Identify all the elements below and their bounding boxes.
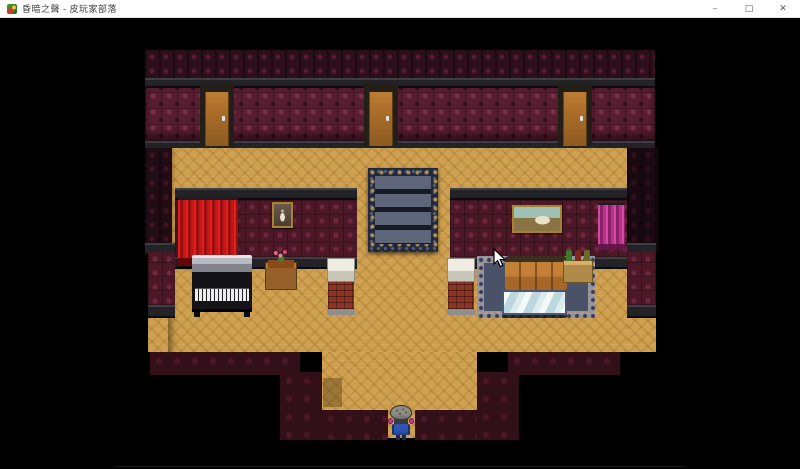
piano-leg <box>194 312 200 317</box>
column-bricks <box>328 282 354 309</box>
character-legs <box>396 435 406 440</box>
door-handle <box>222 116 225 121</box>
floor-center-column[interactable] <box>322 352 477 410</box>
door-handle <box>580 116 583 121</box>
bottom-wall-band-left <box>150 352 300 375</box>
character-body <box>392 424 410 435</box>
window-titlebar[interactable]: 昏暗之聲 - 皮玩家部落 – □ ✕ <box>0 0 800 18</box>
upper-wall-dark <box>145 50 655 78</box>
right-shadow-wall <box>627 148 658 252</box>
olive-bottle <box>584 250 590 261</box>
piano-leg <box>244 312 250 317</box>
landscape-painting <box>512 205 562 233</box>
glass-coffee-table[interactable] <box>502 290 567 315</box>
corridor-wall-left-inner <box>322 410 388 440</box>
column-cap <box>447 258 475 282</box>
corridor-wall-right-inner <box>415 410 477 440</box>
game-app-icon <box>7 4 17 14</box>
corridor-wall-left-outer <box>280 372 322 440</box>
floor-right-extension[interactable] <box>627 318 656 352</box>
window-title: 昏暗之聲 - 皮玩家部落 <box>22 2 117 15</box>
flower-pot <box>268 248 294 268</box>
door-handle <box>386 116 389 121</box>
landscape-canvas <box>514 207 560 231</box>
red-bottle <box>575 250 581 261</box>
corridor-wall-right-outer <box>477 372 519 440</box>
portrait-canvas <box>274 204 291 226</box>
left-shadow-wall <box>145 148 172 252</box>
column-bricks <box>448 282 474 309</box>
minimize-button[interactable]: – <box>698 0 732 17</box>
character-helmet <box>390 405 412 420</box>
right-stub-wall <box>627 252 656 305</box>
column-base <box>327 309 355 315</box>
maximize-button[interactable]: □ <box>732 0 766 17</box>
door-center[interactable] <box>369 92 393 146</box>
floor-shadow-tile <box>323 378 342 407</box>
floor-left-extension[interactable] <box>148 318 168 352</box>
player-character[interactable] <box>390 405 412 441</box>
left-stub-ledge <box>148 305 175 318</box>
game-viewport[interactable] <box>0 18 800 469</box>
right-stub-ledge <box>627 305 656 318</box>
bottle-shelf[interactable] <box>563 260 593 283</box>
inner-wall-right-top-ledge <box>450 188 627 200</box>
piano-keys <box>195 288 249 301</box>
upright-piano[interactable] <box>192 255 252 317</box>
staircase-rug[interactable] <box>368 168 438 252</box>
leather-sofa[interactable] <box>505 256 567 293</box>
character-ear-guard-right <box>409 418 414 424</box>
magenta-curtain <box>598 203 625 250</box>
column-base <box>447 309 475 315</box>
character-ear-guard-left <box>388 418 393 424</box>
window-controls: – □ ✕ <box>698 0 800 17</box>
column-cap <box>327 258 355 282</box>
staircase-steps <box>375 176 431 244</box>
portrait-painting <box>272 202 293 228</box>
brick-column-left <box>327 258 355 315</box>
window-bottom-edge <box>115 466 685 467</box>
door-left[interactable] <box>205 92 229 146</box>
door-right[interactable] <box>563 92 587 146</box>
bottom-wall-band-right <box>508 352 620 375</box>
left-stub-wall <box>148 252 175 305</box>
brick-column-right <box>447 258 475 315</box>
close-button[interactable]: ✕ <box>766 0 800 17</box>
green-bottle <box>566 250 572 261</box>
piano-lid <box>192 255 252 272</box>
